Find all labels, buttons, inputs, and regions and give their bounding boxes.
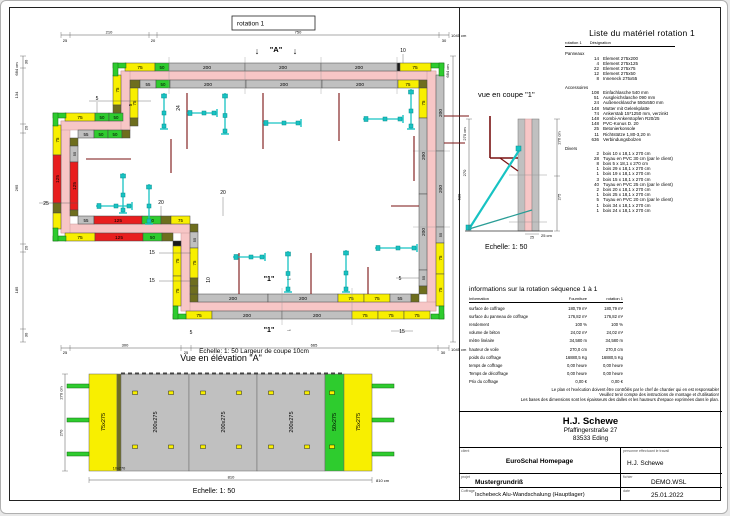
prop-foot <box>398 117 402 121</box>
info-fourniture-value: 34,580 m <box>547 338 587 343</box>
prop-foot <box>127 204 131 208</box>
info-row: mètre linéaire34,580 m34,580 m <box>469 335 623 343</box>
tie-plate <box>133 445 138 449</box>
label: 75 <box>348 296 354 302</box>
tie-plate <box>133 391 138 395</box>
prop-foot <box>344 287 348 291</box>
label: 75 <box>438 255 443 260</box>
tie-plate <box>169 445 174 449</box>
drawing-sheet: rotation 12521020750301045 cm684 cm30134… <box>0 0 728 514</box>
prop-foot <box>212 111 216 115</box>
info-rotation-value: 180,79 m² <box>587 306 623 311</box>
date-cell: date 25.01.2022 <box>621 488 722 501</box>
shape <box>53 213 61 229</box>
formwork-label: Coffrage <box>461 489 475 493</box>
tie-plate <box>269 391 274 395</box>
rotation-info-body: surface de coffrage180,79 m²180,79 m²sur… <box>463 303 623 384</box>
section-a-arrow: ↓ <box>255 46 260 56</box>
shape <box>411 294 419 302</box>
section-a-arrow: ↓ <box>293 46 298 56</box>
prop-nut <box>162 111 166 115</box>
info-rotation-value: 0,00 € <box>587 379 623 384</box>
label: 25 cm <box>541 233 553 238</box>
anchor-bar <box>372 384 394 388</box>
label: 185 <box>14 286 19 293</box>
info-fourniture-value: 0,00 heure <box>547 371 587 376</box>
info-label: mètre linéaire <box>469 338 547 343</box>
tie-plate <box>305 391 310 395</box>
label: 200 <box>203 65 211 71</box>
label: 55 <box>84 132 89 137</box>
label: 15 <box>149 278 155 284</box>
material-item: 8Inneneck 275x55 <box>567 76 719 81</box>
corner <box>439 63 444 76</box>
info-fourniture-value: 176,82 m² <box>547 314 587 319</box>
wall-upperleft-horizontal <box>61 121 130 130</box>
prop-nut <box>249 255 253 259</box>
shape <box>53 203 61 213</box>
label: 200 <box>356 82 364 88</box>
label: 125 <box>115 235 123 241</box>
label: 75 <box>406 82 411 87</box>
file-label: fichier <box>623 475 633 479</box>
info-fourniture-value: 100 % <box>547 322 587 327</box>
item-qty: 1 <box>567 208 599 213</box>
info-rotation-value: 176,82 m² <box>587 314 623 319</box>
label: 50 <box>113 132 118 137</box>
wall-lowerleft-horizontal <box>61 224 190 233</box>
label: 75 <box>77 115 83 121</box>
prop-clamp <box>409 90 414 94</box>
info-col-rotation: rotation 1 <box>587 296 623 301</box>
label: 25 <box>43 201 49 207</box>
person-cell: personne effectuant le travail H.J. Sche… <box>621 448 722 474</box>
label: 10x270 <box>113 467 125 471</box>
person-label: personne effectuant le travail <box>623 449 669 453</box>
prop-nut <box>396 246 400 250</box>
info-label: volume de béton <box>469 330 547 335</box>
label: 20 <box>24 245 29 250</box>
label: 5 <box>190 330 193 336</box>
shape <box>190 294 198 302</box>
info-col-fourniture: Fourniture <box>547 296 587 301</box>
label: 75x275 <box>356 413 362 431</box>
label: 30 <box>24 332 29 337</box>
label: 30 <box>24 59 29 64</box>
corner <box>173 306 178 319</box>
shape <box>161 216 171 224</box>
title-block-grid: client EuroSchal Homepage personne effec… <box>459 448 722 501</box>
prop-foot <box>162 124 166 128</box>
label: 50 <box>161 82 166 87</box>
label: 265 <box>14 184 19 191</box>
label: 20 <box>220 190 226 196</box>
info-row: Temps de décoffrage0,00 heure0,00 heure <box>469 368 623 376</box>
elevation-scale: Echelle: 1: 50 <box>193 488 236 495</box>
anchor-bar <box>67 418 89 422</box>
tie-plate <box>237 391 242 395</box>
wall-left <box>61 121 70 233</box>
corner <box>53 113 58 126</box>
info-label: surface du panneau de coffrage <box>469 314 547 319</box>
shape <box>466 225 471 230</box>
formwork-value: Ischebeck Alu-Wandschalung (Hauptlager) <box>459 488 620 498</box>
label: 15 <box>399 329 405 335</box>
label: 24 <box>176 105 182 111</box>
info-fourniture-value: 180,79 m² <box>547 306 587 311</box>
prop-clamp <box>223 94 228 98</box>
label: 270 <box>59 429 64 436</box>
label: 25 <box>530 236 534 240</box>
label: 20 <box>151 38 156 43</box>
disclaimer-notes: Le plan et l'exécution doivent être cont… <box>463 387 719 402</box>
prop-foot <box>121 208 125 212</box>
prop-nut <box>121 193 125 197</box>
label: 50 <box>114 115 119 120</box>
info-row: rendement100 %100 % <box>469 319 623 327</box>
info-rotation-value: 24,02 m³ <box>587 330 623 335</box>
wall-top <box>121 71 436 80</box>
tie-plate <box>201 391 206 395</box>
anchor-bar <box>67 384 89 388</box>
label: 200 <box>355 65 363 71</box>
shape <box>162 233 173 241</box>
corner <box>439 306 444 319</box>
label: 200 <box>204 82 212 88</box>
prop-nut <box>114 204 118 208</box>
prop-clamp <box>147 185 152 189</box>
label: 75 <box>421 100 426 105</box>
info-fourniture-value: 0,00 heure <box>547 363 587 368</box>
rotation-label: rotation 1 <box>237 21 264 28</box>
label: 684 cm <box>445 64 450 78</box>
rotation-info-header: Information Fourniture rotation 1 <box>469 296 623 303</box>
shape <box>113 105 121 113</box>
label: 75 <box>77 235 83 241</box>
shape <box>190 278 198 286</box>
label: 125 <box>55 175 61 183</box>
tie-plate <box>330 391 335 395</box>
info-label: poids du coffrage <box>469 355 547 360</box>
shape <box>173 241 181 246</box>
project-cell: projet Mustergrundriß <box>459 474 621 488</box>
label: 200 <box>229 296 237 302</box>
info-rotation-value: 16880,5 Kg <box>587 355 623 360</box>
label: 15 <box>149 250 155 256</box>
label: 75 <box>362 313 368 319</box>
tie-plate <box>330 445 335 449</box>
label: 75 <box>196 313 202 319</box>
shape <box>419 286 427 294</box>
company-street: Pfaffingerstraße 27 <box>459 427 722 435</box>
label: → <box>286 276 292 282</box>
info-row: volume de béton24,02 m³24,02 m³ <box>469 327 623 335</box>
material-item: 1bois 24 x 18,1 x 270 cm <box>567 208 719 213</box>
item-designation: Inneneck 275x55 <box>599 76 637 81</box>
info-rotation-value: 34,580 m <box>587 338 623 343</box>
date-value: 25.01.2022 <box>621 488 722 499</box>
label: 125 <box>114 218 122 224</box>
label: 75 <box>137 65 143 71</box>
label: 5 <box>96 96 99 102</box>
label: 55 <box>421 275 426 280</box>
label: → <box>286 327 292 333</box>
label: 665 <box>311 343 318 348</box>
shape <box>190 224 198 232</box>
info-row: surface du panneau de coffrage176,82 m²1… <box>469 311 623 319</box>
label: 200 <box>438 109 444 117</box>
prop-foot <box>412 246 416 250</box>
tie-plate <box>269 445 274 449</box>
tie-plate <box>201 445 206 449</box>
label: 200x275 <box>153 411 159 432</box>
formwork-cell: Coffrage Ischebeck Alu-Wandschalung (Hau… <box>459 488 621 501</box>
label: 200 <box>279 65 287 71</box>
rotation-info-table: informations sur la rotation séquence 1 … <box>463 286 623 384</box>
info-rotation-value: 270,0 cm <box>587 347 623 352</box>
prop-nut <box>202 111 206 115</box>
tie-plate <box>237 445 242 449</box>
info-fourniture-value: 16880,5 Kg <box>547 355 587 360</box>
title-block-header: H.J. Schewe Pfaffingerstraße 27 83533 Ed… <box>459 412 722 448</box>
section-a-marker: "A" <box>270 45 283 54</box>
info-label: surface de coffrage <box>469 306 547 311</box>
label: 75 <box>175 288 180 293</box>
prop-foot <box>260 255 264 259</box>
label: 50 <box>150 235 155 240</box>
section-scale: Echelle: 1: 50 <box>485 244 528 251</box>
shape <box>419 80 427 88</box>
label: 629 <box>457 193 462 200</box>
file-value: DEMO.WSL <box>621 474 722 486</box>
label: 75 <box>115 87 120 92</box>
info-row: temps de coffrage0,00 heure0,00 heure <box>469 360 623 368</box>
label: 55 <box>72 151 77 156</box>
cut-1-marker: "1" <box>264 327 275 334</box>
file-cell: fichier DEMO.WSL <box>621 474 722 488</box>
shape <box>122 130 130 138</box>
shape <box>397 63 400 71</box>
project-value: Mustergrundriß <box>459 474 620 486</box>
label: 300 <box>122 343 129 348</box>
wall-right <box>427 71 436 311</box>
prop-nut <box>282 121 286 125</box>
info-label: rendement <box>469 322 547 327</box>
label: 684 cm <box>14 62 19 76</box>
label: 200x275 <box>289 411 295 432</box>
label: 50 <box>99 132 104 137</box>
info-label: Prix du coffrage <box>469 379 547 384</box>
company-city: 83533 Eding <box>459 435 722 443</box>
info-label: temps de coffrage <box>469 363 547 368</box>
label: 55 <box>84 218 89 223</box>
material-list-col-rotation: rotation 1 <box>565 40 582 45</box>
corner <box>53 228 58 241</box>
material-item: 636Verbindungsbolzen <box>567 137 719 142</box>
label: 20 <box>158 200 164 206</box>
label: 200 <box>313 313 321 319</box>
label: 75 <box>55 137 60 142</box>
info-fourniture-value: 270,0 cm <box>547 347 587 352</box>
prop-clamp <box>264 121 268 126</box>
wall-bottom <box>181 302 436 311</box>
item-designation: bois 24 x 18,1 x 270 cm <box>599 208 651 213</box>
label: 75 <box>438 287 443 292</box>
project-label: projet <box>461 475 470 479</box>
label: 30 <box>442 38 447 43</box>
label: 50x275 <box>332 413 338 431</box>
label: 210 <box>106 30 113 35</box>
item-designation: Verbindungsbolzen <box>599 137 641 142</box>
info-row: Prix du coffrage0,00 €0,00 € <box>469 376 623 384</box>
label: 75 <box>412 65 418 71</box>
prop-clamp <box>364 117 368 122</box>
prop-clamp <box>188 111 192 116</box>
prop-clamp <box>97 204 101 209</box>
material-list: Liste du matériel rotation 1 rotation 1 … <box>463 28 719 213</box>
label: 75 <box>178 218 183 223</box>
disclaimer-line: Les bases des dimensions sont les épaiss… <box>463 397 719 402</box>
label: 75x275 <box>101 413 107 431</box>
label: 200 <box>243 313 251 319</box>
prop-foot <box>223 129 227 133</box>
prop-nut <box>223 114 227 118</box>
shape <box>130 80 140 88</box>
shape <box>190 286 198 294</box>
prop-nut <box>286 272 290 276</box>
label: 75 <box>374 296 380 302</box>
label: 10 <box>400 48 406 54</box>
label: 200 <box>421 152 427 160</box>
label: 75 <box>192 260 197 265</box>
tie-plate <box>169 391 174 395</box>
prop-clamp <box>162 94 167 98</box>
material-list-header: rotation 1 Désignation <box>565 40 675 47</box>
title-block: H.J. Schewe Pfaffingerstraße 27 83533 Ed… <box>459 411 722 501</box>
anchor-bar <box>372 452 394 456</box>
shape <box>70 138 78 146</box>
material-list-title: Liste du matériel rotation 1 <box>567 28 717 38</box>
info-rotation-value: 0,00 heure <box>587 371 623 376</box>
material-list-col-designation: Désignation <box>590 40 611 45</box>
shape <box>130 118 138 126</box>
label: 75 <box>175 258 180 263</box>
shape <box>117 374 121 471</box>
info-row: hauteur de voile270,0 cm270,0 cm <box>469 343 623 351</box>
label: 55 <box>146 82 151 87</box>
label: 25 <box>63 38 68 43</box>
label: 200 <box>421 228 427 236</box>
prop-nut <box>383 117 387 121</box>
prop-nut <box>344 271 348 275</box>
label: 50 <box>160 65 165 70</box>
label: 200x275 <box>221 411 227 432</box>
client-cell: client EuroSchal Homepage <box>459 448 621 474</box>
client-label: client <box>461 449 469 453</box>
label: 200 <box>299 296 307 302</box>
material-list-body: Panneaux14Element 275x2004Element 275x12… <box>463 51 719 213</box>
item-qty: 8 <box>567 76 599 81</box>
info-rotation-value: 100 % <box>587 322 623 327</box>
label: 30 <box>441 350 446 355</box>
prop-foot <box>286 287 290 291</box>
label: 75 <box>388 313 394 319</box>
tie-plate <box>305 445 310 449</box>
label: 25 <box>63 350 68 355</box>
info-label: hauteur de voile <box>469 347 547 352</box>
label: 270 cm <box>59 386 64 400</box>
label: 20 <box>24 125 29 130</box>
date-label: date <box>623 489 630 493</box>
label: 750 <box>295 30 302 35</box>
shape <box>70 210 78 216</box>
corner <box>113 63 118 76</box>
label: 810 <box>228 475 235 480</box>
label: 125 <box>72 182 78 190</box>
label: 10 <box>206 277 212 283</box>
elevation-title: Vue en élévation "A" <box>180 353 262 363</box>
label: 75 <box>414 313 420 319</box>
prop-foot <box>296 121 300 125</box>
label: 50 <box>100 115 105 120</box>
prop-foot <box>409 124 413 128</box>
prop-clamp <box>121 174 126 178</box>
anchor-bar <box>67 452 89 456</box>
cut-1-marker: "1" <box>264 276 275 283</box>
prop-clamp <box>286 252 291 256</box>
label: 55 <box>398 296 403 301</box>
info-row: surface de coffrage180,79 m²180,79 m² <box>469 303 623 311</box>
prop-clamp <box>376 246 380 251</box>
label: 55 <box>438 232 443 237</box>
wall-lowerleft-vertical <box>181 224 190 311</box>
prop-nut <box>147 204 151 208</box>
client-value: EuroSchal Homepage <box>459 448 620 465</box>
label: 810 cm <box>376 478 390 483</box>
label: 5 <box>399 276 402 282</box>
anchor-bar <box>372 418 394 422</box>
label: 55 <box>192 237 197 242</box>
prop-clamp <box>344 251 349 255</box>
item-qty: 636 <box>567 137 599 142</box>
prop-foot <box>147 219 151 223</box>
rotation-info-title: informations sur la rotation séquence 1 … <box>469 286 623 293</box>
info-row: poids du coffrage16880,5 Kg16880,5 Kg <box>469 352 623 360</box>
info-col-label: Information <box>469 296 547 301</box>
prop-clamp <box>234 255 238 260</box>
info-label: Temps de décoffrage <box>469 371 547 376</box>
label: 134 <box>14 91 19 98</box>
prop-nut <box>409 109 413 113</box>
label: 200 <box>280 82 288 88</box>
info-fourniture-value: 24,02 m³ <box>547 330 587 335</box>
company-name: H.J. Schewe <box>459 416 722 427</box>
info-fourniture-value: 0,00 € <box>547 379 587 384</box>
info-rotation-value: 0,00 heure <box>587 363 623 368</box>
label: 200 <box>438 185 444 193</box>
